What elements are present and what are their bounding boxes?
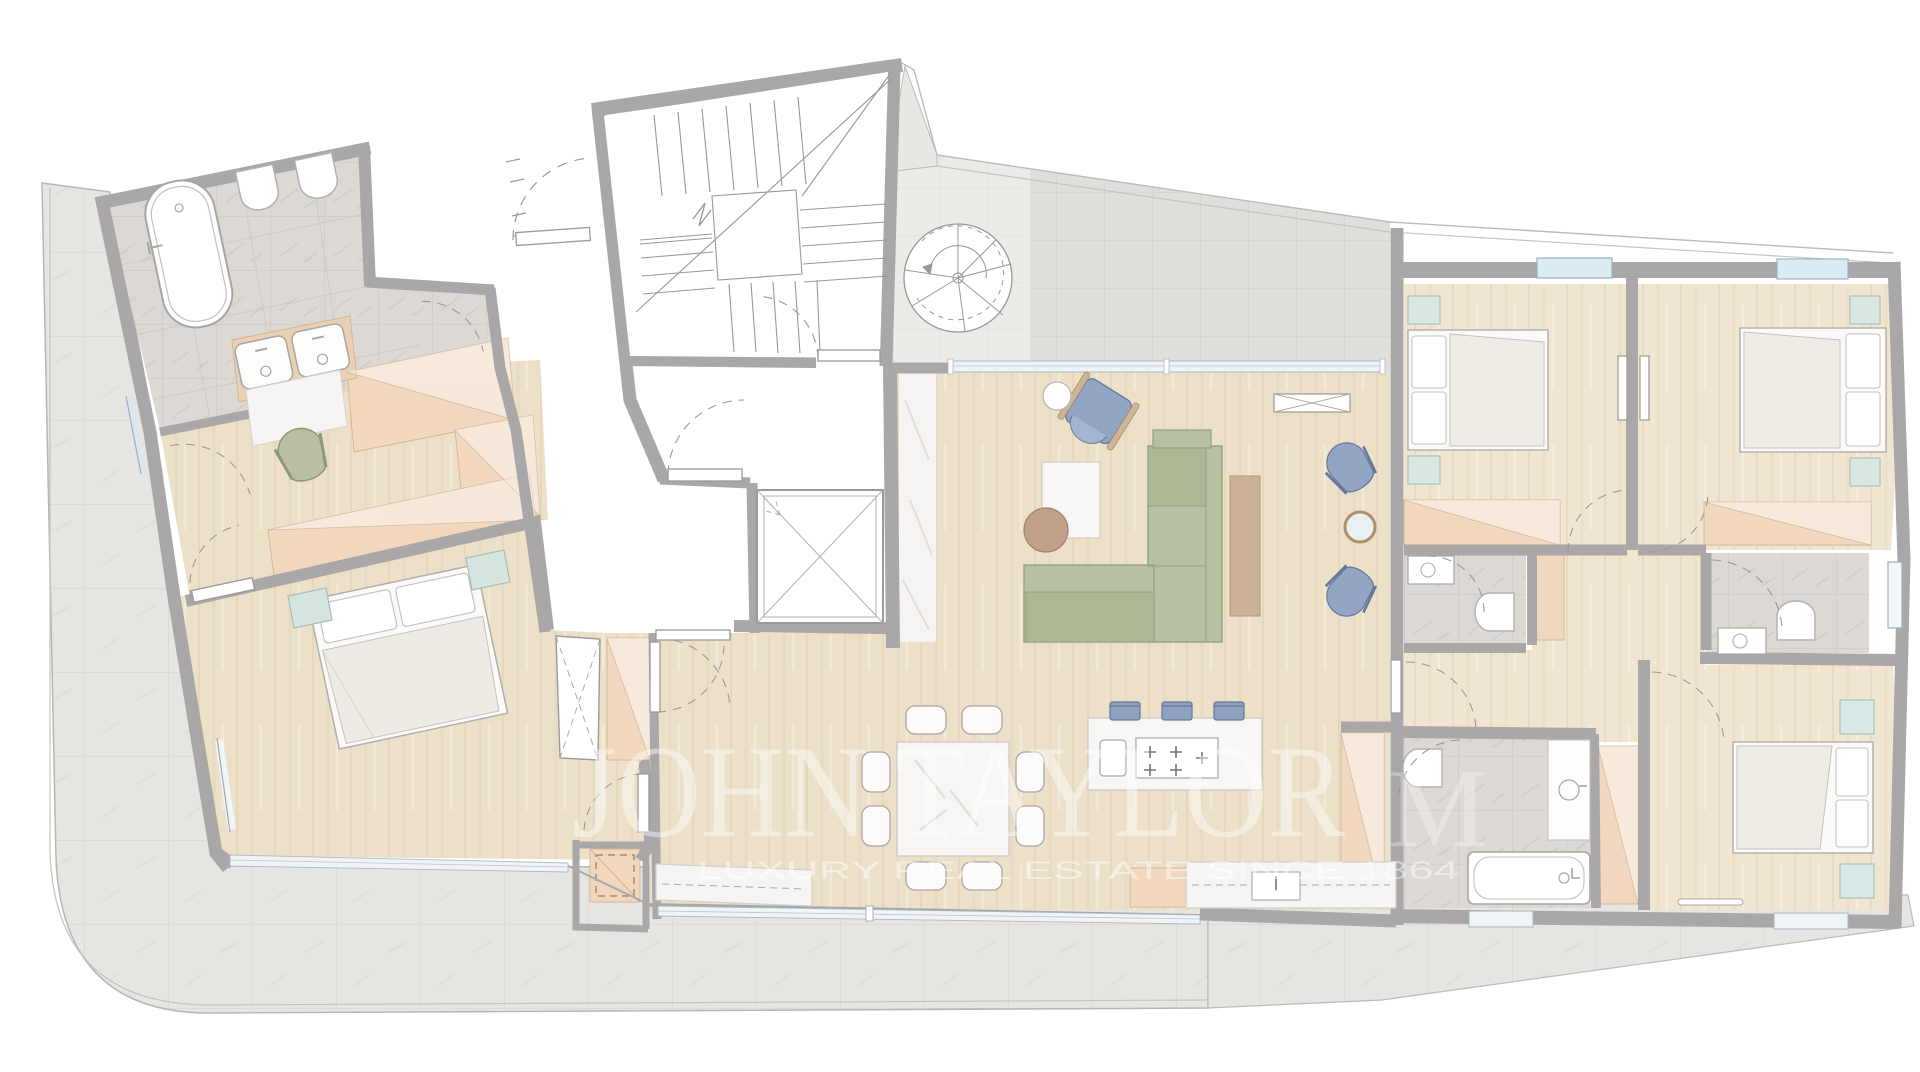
svg-text:JOHN TAYLOR: JOHN TAYLOR [572,718,1345,865]
svg-text:M: M [1388,747,1488,871]
svg-text:LUXURY REAL ESTATE SINCE 1864: LUXURY REAL ESTATE SINCE 1864 [697,857,1459,885]
